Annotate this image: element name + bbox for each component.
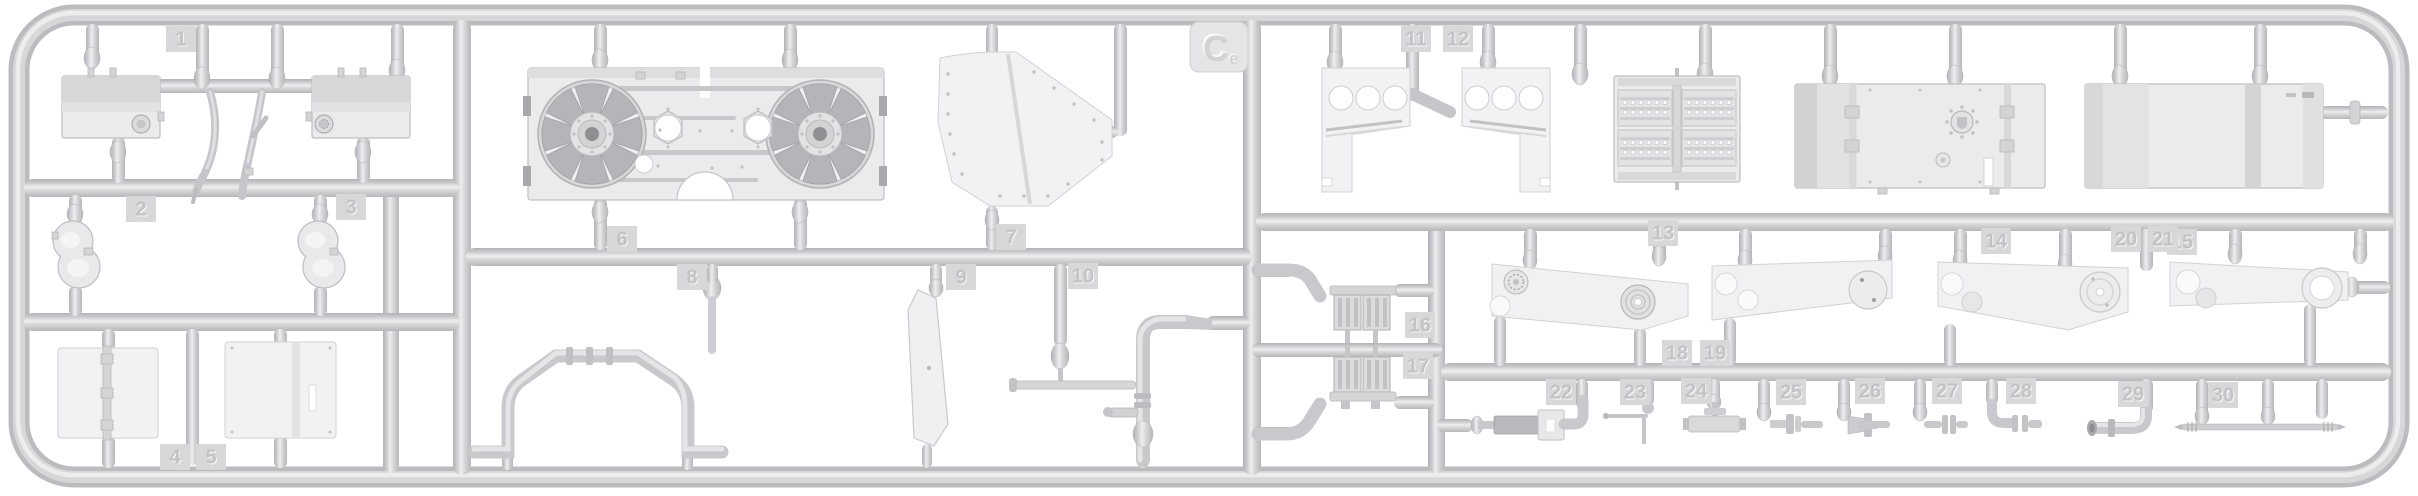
part-number: 24 bbox=[1685, 381, 1708, 403]
part-valve-fitting bbox=[1848, 413, 1890, 437]
sprue-letter: C bbox=[1203, 28, 1229, 69]
part-number: 14 bbox=[1985, 231, 2008, 253]
runner-tank-link bbox=[150, 79, 320, 93]
runner-left-lower bbox=[24, 313, 460, 331]
part-number: 28 bbox=[2010, 381, 2032, 403]
part-track-run-3 bbox=[1938, 262, 2128, 330]
part-number-tag: 66 bbox=[607, 226, 637, 252]
part-number-tag: 2626 bbox=[1855, 378, 1885, 404]
part-number-tag: 44 bbox=[160, 444, 190, 470]
part-number-tag: 99 bbox=[946, 264, 976, 290]
part-track-run-4 bbox=[2170, 262, 2348, 308]
part-u-pipe bbox=[474, 347, 722, 452]
part-engine-deck bbox=[523, 66, 887, 200]
part-number: 25 bbox=[1780, 382, 1802, 404]
part-kidney-pad-right bbox=[298, 221, 345, 288]
part-t-muffler bbox=[1683, 402, 1746, 432]
part-fuel-tank-right bbox=[306, 68, 410, 138]
part-number-tag: 3030 bbox=[2208, 382, 2238, 408]
part-number-tag: 2121 bbox=[2148, 226, 2178, 252]
part-number-tag: 1818 bbox=[1662, 340, 1692, 366]
part-number-tag: 1313 bbox=[1648, 220, 1678, 246]
part-number-tag: 1616 bbox=[1405, 312, 1435, 338]
part-number: 26 bbox=[1859, 381, 1881, 403]
runner-vertical-1 bbox=[453, 20, 471, 475]
part-number: 23 bbox=[1624, 382, 1646, 404]
part-track-run-2 bbox=[1712, 260, 1892, 320]
part-hatch-panel-right bbox=[225, 342, 336, 438]
part-flanged-fitting bbox=[1924, 415, 1968, 434]
part-hatch-panel-left bbox=[58, 346, 158, 440]
part-number: 30 bbox=[2212, 385, 2234, 407]
runner-right-upper bbox=[1256, 213, 2394, 231]
part-number: 13 bbox=[1652, 223, 1674, 245]
part-number-tag: 2424 bbox=[1681, 378, 1711, 404]
part-elbow-pipe bbox=[2087, 410, 2146, 437]
sprue-letter-suffix: e bbox=[1229, 49, 1238, 68]
part-number-tag: 1212 bbox=[1443, 26, 1473, 52]
part-number: 11 bbox=[1405, 29, 1426, 51]
runner-right-lower bbox=[1441, 363, 2391, 381]
part-number-tag: 1414 bbox=[1981, 228, 2011, 254]
part-number: 8 bbox=[686, 267, 697, 289]
part-large-hatch-panel-2 bbox=[2085, 84, 2323, 188]
part-number-tag: 2828 bbox=[2006, 378, 2036, 404]
part-number: 12 bbox=[1447, 29, 1469, 51]
part-number: 22 bbox=[1550, 382, 1572, 404]
part-pipe-assembly bbox=[1009, 315, 1212, 460]
part-number: 18 bbox=[1666, 343, 1688, 365]
part-number-tag: 33 bbox=[336, 194, 366, 220]
part-number: 20 bbox=[2115, 229, 2137, 251]
part-number: 17 bbox=[1407, 356, 1429, 378]
part-number: 9 bbox=[955, 267, 966, 289]
part-number: 5 bbox=[205, 447, 216, 469]
part-number-tag: 1919 bbox=[1700, 340, 1730, 366]
part-fuel-tank-left bbox=[62, 68, 164, 138]
part-strap-with-buckle bbox=[1478, 400, 1583, 440]
part-louver-grille bbox=[1614, 68, 1740, 190]
part-exhaust-manifold-lower bbox=[1258, 345, 1396, 434]
part-number-tag: 11 bbox=[166, 26, 196, 52]
part-number-tag: 77 bbox=[996, 224, 1026, 250]
part-number-tag: 2222 bbox=[1546, 379, 1576, 405]
part-bracket-left bbox=[1322, 68, 1410, 192]
runner-vertical-2 bbox=[1243, 20, 1261, 475]
part-number-tag: 2929 bbox=[2118, 381, 2148, 407]
part-number: 16 bbox=[1409, 315, 1431, 337]
part-number: 4 bbox=[169, 447, 181, 469]
part-number: 19 bbox=[1704, 343, 1726, 365]
part-number-tag: 55 bbox=[196, 444, 226, 470]
part-pipe-fitting-1 bbox=[1770, 414, 1823, 434]
part-number-tag: 1111 bbox=[1401, 26, 1431, 52]
part-exhaust-manifold-upper bbox=[1258, 270, 1396, 343]
runner-middle bbox=[466, 248, 1252, 266]
sprue-photo: C C e e 11223344556677889910101111121213… bbox=[0, 0, 2418, 496]
part-fender-panel bbox=[938, 52, 1112, 206]
part-number: 6 bbox=[616, 229, 627, 251]
part-kidney-pad-left bbox=[52, 221, 100, 288]
part-large-hatch-panel-1 bbox=[1795, 84, 2045, 194]
part-bracket-right bbox=[1462, 68, 1550, 192]
part-number: 1 bbox=[175, 29, 186, 51]
part-number: 27 bbox=[1936, 381, 1958, 403]
part-number-tag: 88 bbox=[677, 264, 707, 290]
part-number: 3 bbox=[345, 197, 356, 219]
part-number-tag: 2727 bbox=[1932, 378, 1962, 404]
part-track-run-1 bbox=[1490, 264, 1688, 330]
part-number-tag: 22 bbox=[126, 196, 156, 222]
part-elbow-fitting bbox=[1992, 404, 2042, 432]
sprue-letter-tab: C C e e bbox=[1190, 22, 1248, 72]
part-number-tag: 1717 bbox=[1403, 353, 1433, 379]
part-number: 10 bbox=[1072, 266, 1094, 288]
part-l-shaped-rod bbox=[1603, 413, 1648, 444]
part-number: 21 bbox=[2152, 229, 2174, 251]
part-number-tag: 2525 bbox=[1776, 379, 1806, 405]
part-number-tag: 1010 bbox=[1068, 263, 1098, 289]
part-number: 7 bbox=[1005, 227, 1016, 249]
part-number: 29 bbox=[2122, 384, 2144, 406]
part-number-tag: 2323 bbox=[1620, 379, 1650, 405]
part-number-tag: 2020 bbox=[2111, 226, 2141, 252]
part-flat-blade bbox=[908, 290, 948, 446]
part-number: 2 bbox=[135, 199, 146, 221]
